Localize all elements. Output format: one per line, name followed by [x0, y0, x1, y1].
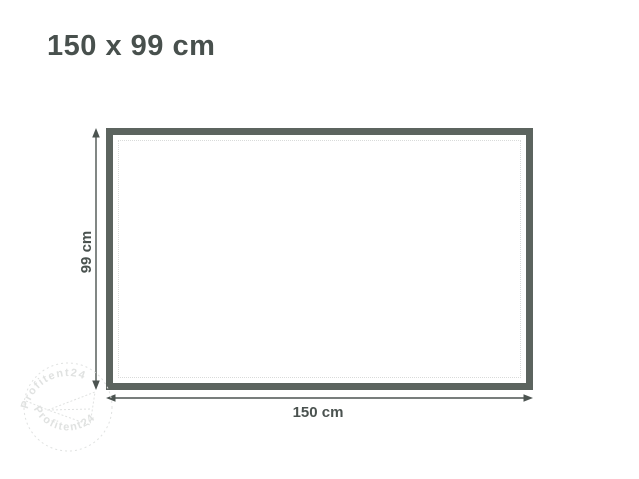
page-title: 150 x 99 cm — [47, 30, 215, 63]
watermark-arc-text-top: Profitent24 — [20, 367, 88, 410]
height-label: 99 cm — [77, 212, 97, 292]
watermark-arc-text-top-path: Profitent24 — [20, 367, 88, 410]
watermark-inner-line — [48, 409, 92, 410]
watermark-logo: Profitent24 Profitent24 — [20, 359, 116, 455]
seam-dotted-outline — [118, 140, 521, 378]
width-label: 150 cm — [258, 404, 378, 421]
diagram-canvas: 150 x 99 cm 99 cm 150 cm Profitent24 Pro… — [0, 0, 639, 479]
tarp-rectangle — [106, 128, 533, 390]
watermark-arc-text-bottom-path: Profitent24 — [31, 404, 98, 433]
width-dimension-arrow — [106, 391, 533, 405]
watermark-arc-text-bottom: Profitent24 — [31, 404, 98, 433]
arrowhead-right-icon — [524, 394, 534, 402]
arrowhead-up-icon — [92, 128, 100, 138]
